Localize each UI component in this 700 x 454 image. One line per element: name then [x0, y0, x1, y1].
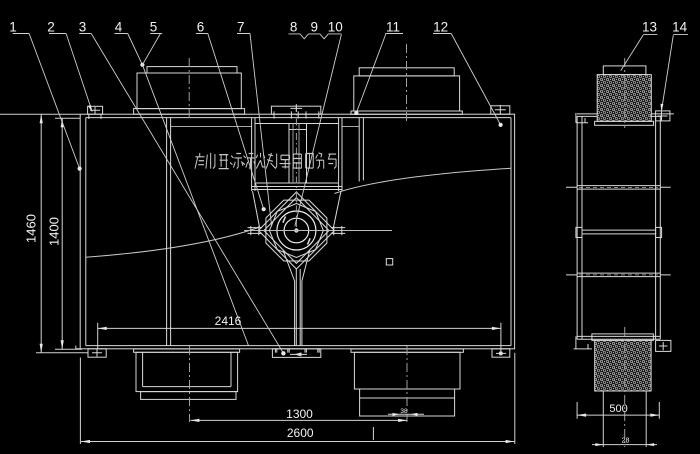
- svg-text:1: 1: [9, 20, 17, 35]
- svg-text:10: 10: [328, 20, 343, 35]
- svg-text:7: 7: [237, 20, 245, 35]
- svg-text:500: 500: [609, 403, 627, 415]
- svg-text:2: 2: [47, 20, 55, 35]
- svg-text:3: 3: [79, 20, 87, 35]
- svg-text:1300: 1300: [286, 407, 313, 421]
- svg-text:2416: 2416: [215, 314, 242, 328]
- svg-text:12: 12: [433, 20, 448, 35]
- svg-text:1460: 1460: [24, 214, 39, 243]
- svg-text:14: 14: [672, 20, 688, 35]
- svg-text:1400: 1400: [47, 217, 62, 246]
- svg-text:28: 28: [622, 438, 630, 445]
- svg-text:2600: 2600: [287, 426, 314, 440]
- svg-text:38: 38: [400, 408, 408, 415]
- svg-text:11: 11: [386, 20, 400, 35]
- svg-text:5: 5: [150, 20, 158, 35]
- svg-text:4: 4: [115, 20, 123, 35]
- svg-text:13: 13: [642, 20, 657, 35]
- svg-text:9: 9: [310, 20, 318, 35]
- svg-text:6: 6: [197, 20, 205, 35]
- svg-text:8: 8: [290, 20, 298, 35]
